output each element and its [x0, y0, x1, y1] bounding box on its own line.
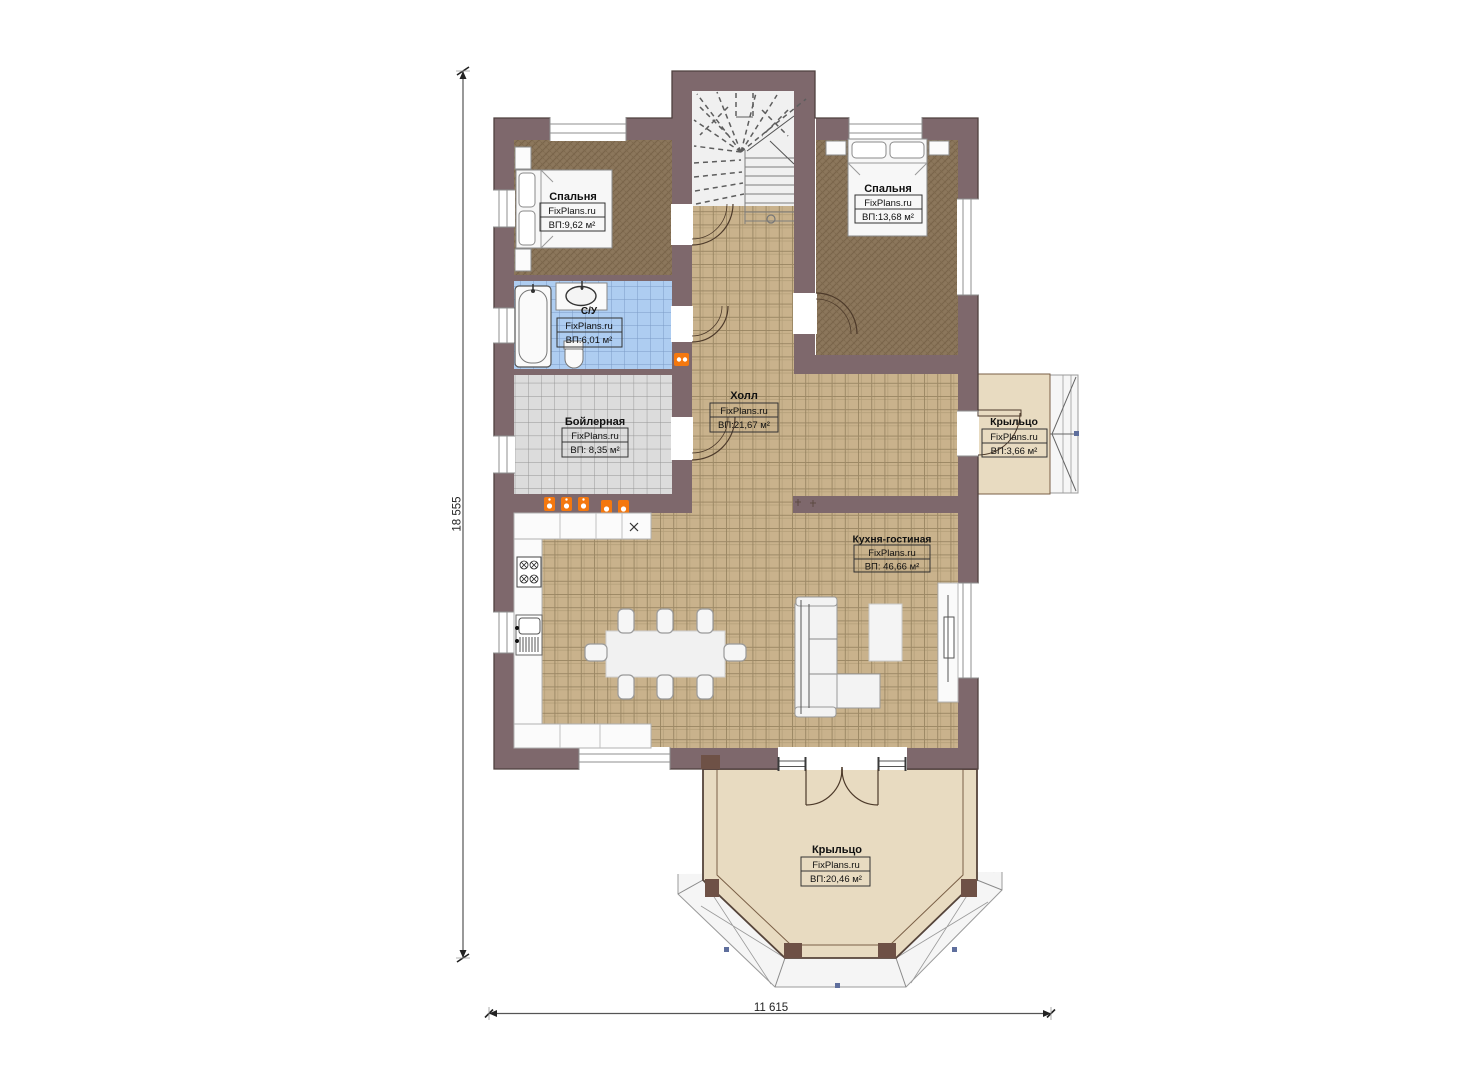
- svg-text:11 615: 11 615: [754, 1002, 788, 1014]
- svg-text:ВП:3,66 м²: ВП:3,66 м²: [991, 446, 1038, 457]
- svg-text:FixPlans.ru: FixPlans.ru: [571, 431, 619, 442]
- svg-text:FixPlans.ru: FixPlans.ru: [720, 406, 768, 417]
- svg-text:Крыльцо: Крыльцо: [812, 844, 862, 856]
- svg-text:ВП:6,01 м²: ВП:6,01 м²: [566, 335, 613, 346]
- svg-text:С/У: С/У: [581, 306, 598, 317]
- svg-text:ВП: 8,35 м²: ВП: 8,35 м²: [570, 445, 619, 456]
- svg-text:FixPlans.ru: FixPlans.ru: [990, 432, 1038, 443]
- svg-text:ВП:21,67 м²: ВП:21,67 м²: [718, 420, 770, 431]
- svg-text:Спальня: Спальня: [549, 191, 597, 203]
- svg-text:FixPlans.ru: FixPlans.ru: [812, 860, 860, 871]
- svg-text:FixPlans.ru: FixPlans.ru: [548, 206, 596, 217]
- svg-text:ВП:20,46 м²: ВП:20,46 м²: [810, 874, 862, 885]
- svg-text:ВП:13,68 м²: ВП:13,68 м²: [862, 212, 914, 223]
- svg-text:FixPlans.ru: FixPlans.ru: [868, 548, 916, 559]
- svg-text:Бойлерная: Бойлерная: [565, 416, 625, 428]
- svg-text:ВП: 46,66 м²: ВП: 46,66 м²: [865, 562, 920, 573]
- svg-text:Кухня-гостиная: Кухня-гостиная: [853, 535, 932, 546]
- svg-text:FixPlans.ru: FixPlans.ru: [565, 321, 613, 332]
- svg-text:FixPlans.ru: FixPlans.ru: [864, 198, 912, 209]
- svg-text:18 555: 18 555: [452, 496, 464, 531]
- svg-text:Крыльцо: Крыльцо: [990, 416, 1038, 428]
- svg-text:Спальня: Спальня: [864, 183, 912, 195]
- svg-text:ВП:9,62 м²: ВП:9,62 м²: [549, 220, 596, 231]
- svg-text:Холл: Холл: [730, 390, 758, 402]
